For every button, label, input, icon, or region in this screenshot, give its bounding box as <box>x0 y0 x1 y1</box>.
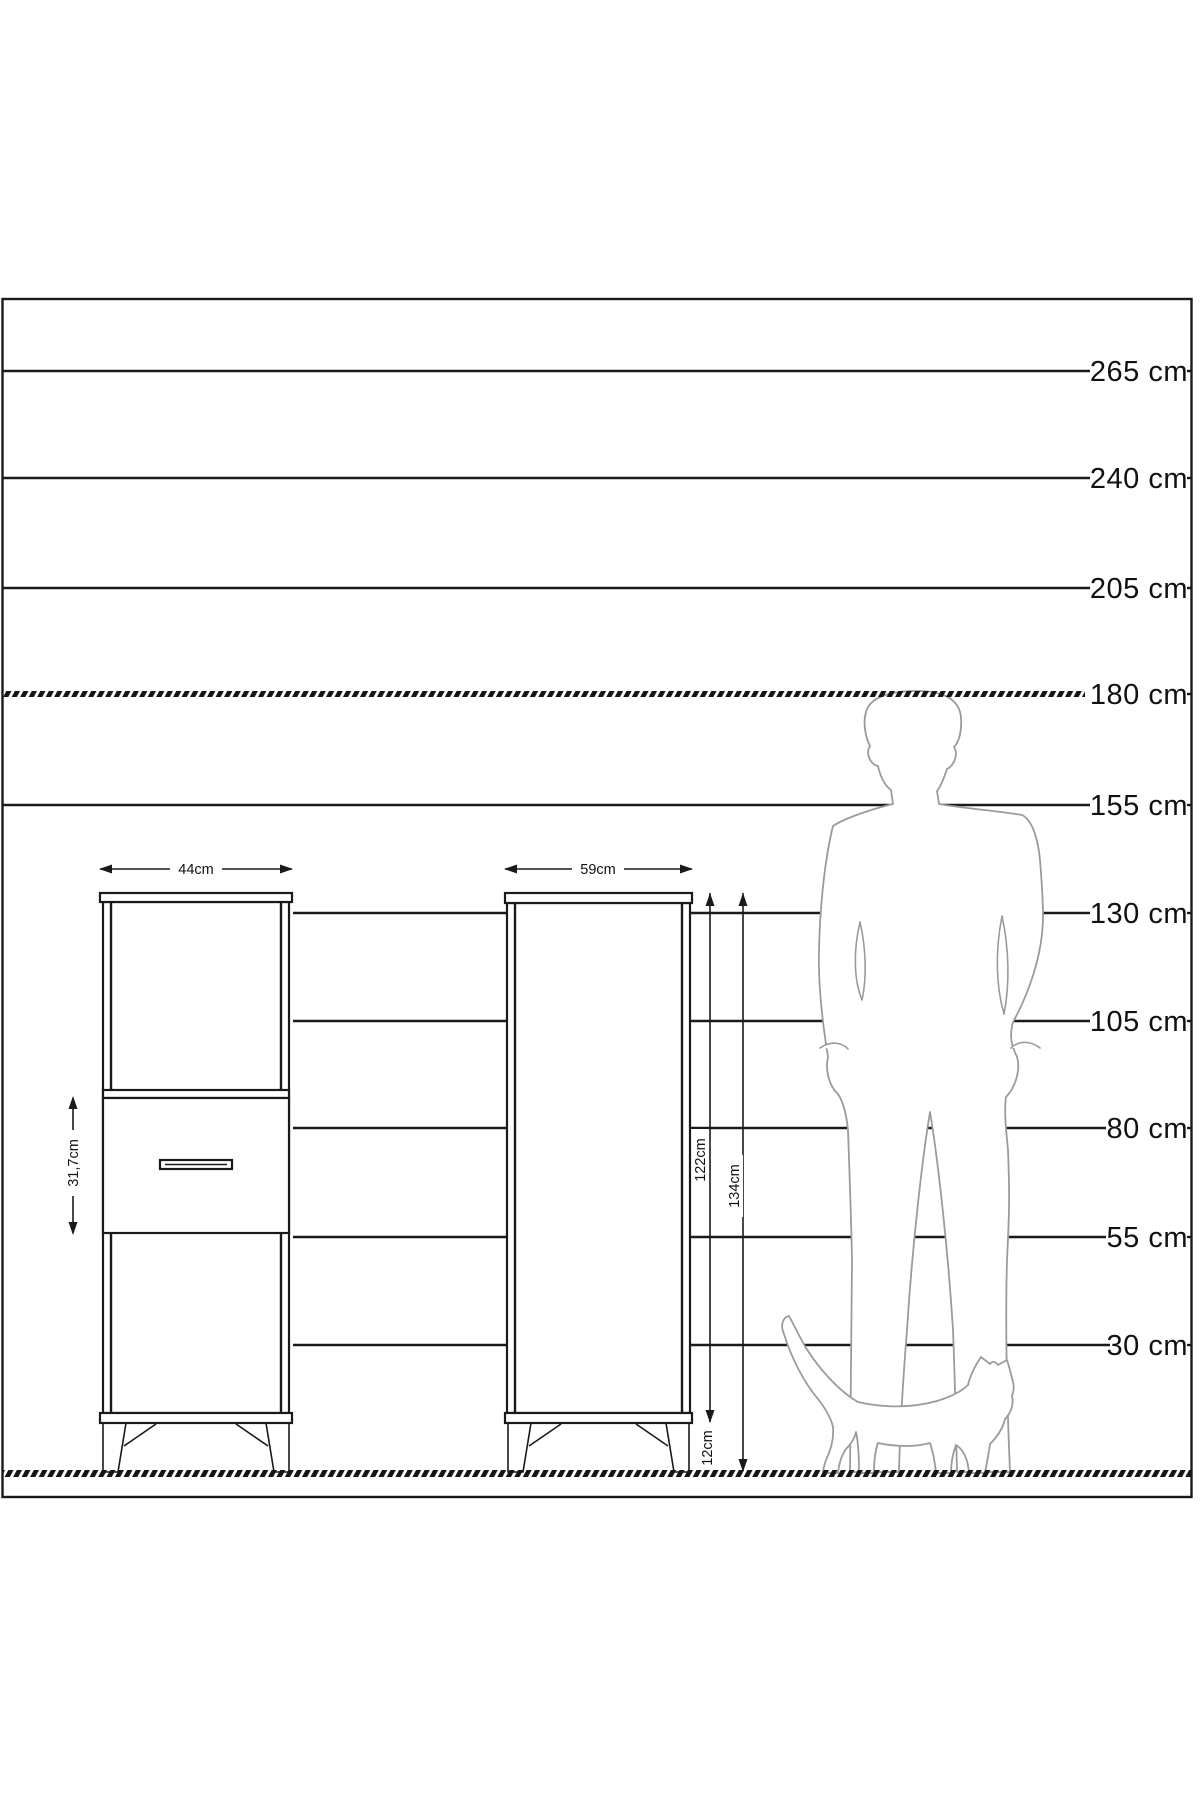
scale-label-55cm: 55 cm <box>1107 1222 1188 1254</box>
leg-height-label: 12cm <box>700 1430 716 1465</box>
left-cabinet-shelf <box>103 1090 289 1098</box>
leg-brace <box>636 1424 668 1446</box>
right-cabinet-legs <box>508 1423 689 1472</box>
arrow-right-icon <box>680 865 693 874</box>
right-cabinet <box>505 893 692 1472</box>
cabinet-leg <box>103 1423 126 1472</box>
ground-hatch-line <box>2 1470 1192 1477</box>
dim-left-cabinet-width: 44cm <box>99 858 293 879</box>
height-scale-labels: 265 cm 240 cm 205 cm 180 cm 155 cm 130 c… <box>1090 356 1188 1362</box>
scale-label-205cm: 205 cm <box>1090 573 1188 605</box>
person-silhouette <box>819 691 1043 1472</box>
right-cabinet-body <box>507 903 690 1413</box>
drawer-height-label: 31,7cm <box>66 1139 82 1187</box>
left-cabinet-legs <box>103 1423 289 1472</box>
left-cabinet-width-label: 44cm <box>178 862 213 878</box>
left-cabinet <box>100 893 292 1472</box>
scale-label-265cm: 265 cm <box>1090 356 1188 388</box>
arrow-down-icon <box>69 1222 78 1235</box>
arrow-down-icon <box>706 1410 715 1423</box>
arrow-up-icon <box>69 1096 78 1109</box>
arrow-left-icon <box>99 865 112 874</box>
leg-brace <box>236 1424 268 1446</box>
right-cabinet-bottom-panel <box>505 1413 692 1423</box>
scale-label-80cm: 80 cm <box>1107 1113 1188 1145</box>
right-cabinet-width-label: 59cm <box>580 862 615 878</box>
dashed-180-line <box>3 691 1085 697</box>
person-outline <box>819 691 1043 1472</box>
left-cabinet-top-panel <box>100 893 292 902</box>
scale-label-130cm: 130 cm <box>1090 898 1188 930</box>
scale-label-30cm: 30 cm <box>1107 1330 1188 1362</box>
left-cabinet-bottom-panel <box>100 1413 292 1423</box>
arrow-up-icon <box>706 893 715 906</box>
leg-brace <box>529 1424 561 1446</box>
dim-cabinet-body-height: 122cm <box>689 893 715 1423</box>
scale-label-105cm: 105 cm <box>1090 1006 1188 1038</box>
dim-cabinet-total-height: 134cm <box>723 893 748 1472</box>
dim-drawer-section-height: 31,7cm <box>62 1096 82 1235</box>
cabinet-leg <box>666 1423 689 1472</box>
diagram-canvas: 44cm 59cm 31,7cm 122cm <box>0 0 1200 1800</box>
cabinet-leg <box>266 1423 289 1472</box>
person-cuff-right <box>1011 1042 1040 1048</box>
arrow-right-icon <box>280 865 293 874</box>
right-cabinet-top-panel <box>505 893 692 903</box>
cabinet-total-height-label: 134cm <box>727 1164 743 1208</box>
scale-label-155cm: 155 cm <box>1090 790 1188 822</box>
scale-label-180cm: 180 cm <box>1090 679 1188 711</box>
dim-leg-height: 12cm <box>697 1423 716 1473</box>
dim-right-cabinet-width: 59cm <box>504 858 693 879</box>
furniture-dimension-diagram: 44cm 59cm 31,7cm 122cm <box>0 0 1200 1800</box>
cabinet-leg <box>508 1423 531 1472</box>
arrow-up-icon <box>739 893 748 906</box>
cabinet-body-height-label: 122cm <box>693 1138 709 1182</box>
scale-line-180cm <box>3 691 1192 697</box>
arrow-left-icon <box>504 865 517 874</box>
leg-brace <box>124 1424 156 1446</box>
scale-label-240cm: 240 cm <box>1090 463 1188 495</box>
